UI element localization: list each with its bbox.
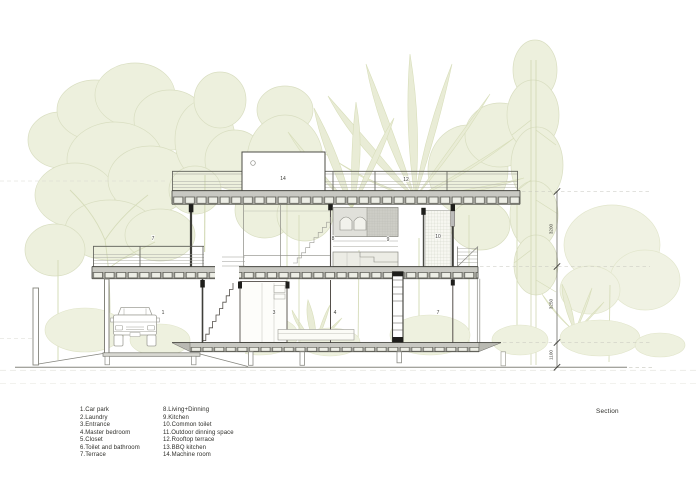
legend-item: 2.Laundry — [80, 415, 163, 423]
dimension-line: 320032501100 — [480, 188, 652, 370]
legend-column-right: 8.Living+Dinning9.Kitchen10.Common toile… — [163, 407, 234, 460]
legend-item: 9.Kitchen — [163, 415, 234, 423]
legend-item: 5.Closet — [80, 437, 163, 445]
dimension-value: 3200 — [549, 223, 554, 234]
boundary-fence — [33, 288, 39, 365]
room-number: 7 — [152, 236, 155, 242]
room-number: 7 — [437, 310, 440, 316]
legend-column-left: 1.Car park2.Laundry3.Entrance4.Master be… — [80, 407, 163, 460]
legend-item: 13.BBQ kitchen — [163, 445, 234, 453]
legend-item: 7.Terrace — [80, 452, 163, 460]
carport-floor — [103, 353, 200, 365]
rooftop-railing — [172, 171, 518, 190]
bedroom-furniture — [278, 330, 354, 341]
room-number: 9 — [387, 237, 390, 243]
car — [111, 308, 160, 347]
dimension-value: 1100 — [549, 350, 554, 360]
carport-column — [105, 279, 110, 353]
right-terrace-railing — [457, 247, 478, 267]
architectural-section-sheet: 320032501100 1412789101347 1.Car park2.L… — [0, 0, 700, 495]
legend: 1.Car park2.Laundry3.Entrance4.Master be… — [80, 407, 234, 460]
legend-item: 3.Entrance — [80, 422, 163, 430]
dimension-labels: 320032501100 — [549, 223, 554, 359]
legend-item: 8.Living+Dinning — [163, 407, 234, 415]
legend-item: 11.Outdoor dinning space — [163, 430, 234, 438]
left-terrace-railing — [93, 246, 204, 266]
room-number: 3 — [273, 310, 276, 316]
drawing-title: Section — [596, 408, 619, 415]
legend-item: 14.Machine room — [163, 452, 234, 460]
legend-item: 10.Common toilet — [163, 422, 234, 430]
shelf-wall — [393, 272, 404, 343]
dimension-value: 3250 — [549, 298, 554, 309]
room-number: 4 — [334, 310, 337, 316]
legend-item: 12.Rooftop terrace — [163, 437, 234, 445]
room-number: 12 — [403, 177, 409, 183]
second-floor-slab — [92, 267, 478, 279]
room-number: 14 — [280, 176, 286, 182]
upper-stair — [293, 217, 331, 263]
room-number: 1 — [162, 310, 165, 316]
legend-item: 6.Toilet and bathroom — [80, 445, 163, 453]
ground-slab — [172, 343, 501, 352]
legend-item: 1.Car park — [80, 407, 163, 415]
room-number: 10 — [435, 234, 441, 240]
machine-room-box — [242, 152, 325, 192]
foundation-columns — [249, 352, 506, 366]
legend-item: 4.Master bedroom — [80, 430, 163, 438]
roof-slab — [172, 191, 520, 205]
room-number: 8 — [332, 236, 335, 242]
